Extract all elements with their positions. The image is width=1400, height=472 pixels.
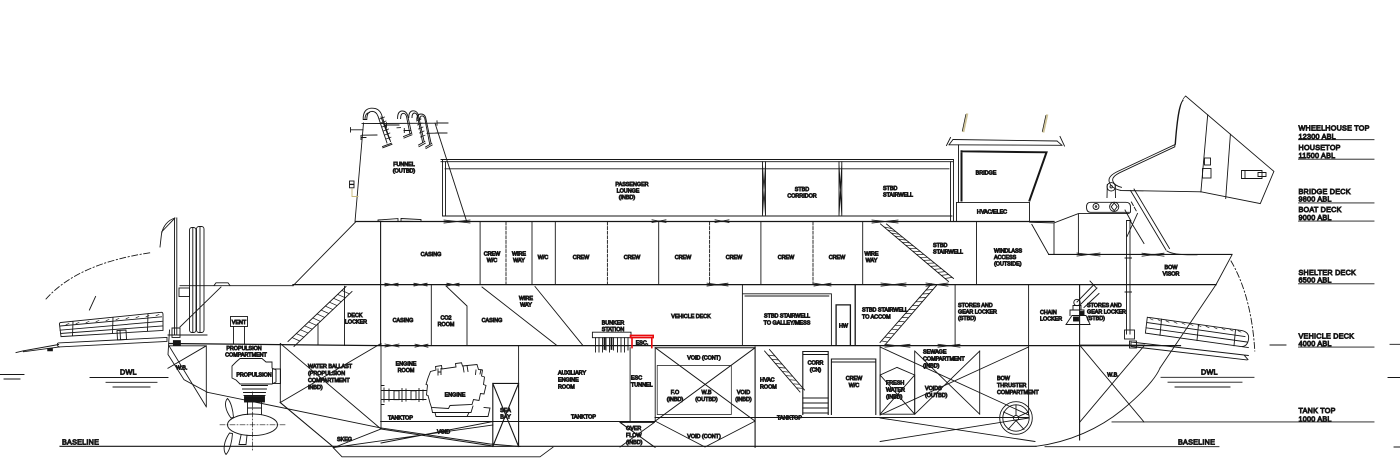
svg-text:VOID (CONT): VOID (CONT) [687, 434, 721, 440]
svg-text:CORR: CORR [808, 361, 824, 367]
svg-text:PROPULSION: PROPULSION [236, 373, 271, 379]
svg-text:STAIRWELL: STAIRWELL [933, 250, 963, 256]
svg-text:VOID: VOID [737, 390, 750, 396]
svg-text:PROPULSION: PROPULSION [226, 346, 261, 352]
svg-text:CASING: CASING [421, 252, 442, 258]
svg-text:STBD: STBD [883, 186, 897, 192]
svg-text:(INBD): (INBD) [923, 364, 940, 370]
svg-text:ROOM: ROOM [760, 385, 777, 391]
svg-text:WINDLASS: WINDLASS [994, 249, 1023, 255]
svg-text:ENGINE: ENGINE [445, 393, 466, 399]
svg-text:VOIDS: VOIDS [925, 386, 942, 392]
svg-text:CREW: CREW [484, 252, 501, 258]
svg-text:(CN): (CN) [810, 368, 822, 374]
svg-text:HVAC/ELEC: HVAC/ELEC [977, 210, 1007, 216]
svg-text:CASING: CASING [393, 318, 414, 324]
svg-text:LOCKER: LOCKER [345, 320, 367, 326]
svg-text:(STBD): (STBD) [958, 316, 976, 322]
svg-text:(PROPULSION: (PROPULSION [308, 371, 345, 377]
svg-text:INBD): INBD) [308, 385, 323, 391]
svg-text:WATER BALLAST: WATER BALLAST [308, 364, 353, 370]
svg-text:ENGINE: ENGINE [558, 378, 579, 384]
svg-text:ENGINE: ENGINE [396, 362, 417, 368]
svg-text:LOUNGE: LOUNGE [617, 189, 640, 195]
svg-text:ESC.: ESC. [636, 341, 649, 347]
svg-text:(INBD): (INBD) [886, 395, 903, 401]
svg-text:TANKTOP: TANKTOP [388, 416, 413, 422]
svg-text:ROOM: ROOM [558, 385, 575, 391]
svg-text:FLOW: FLOW [626, 433, 642, 439]
svg-text:(OUTSIDE): (OUTSIDE) [994, 262, 1022, 268]
svg-text:TUNNEL: TUNNEL [631, 383, 653, 389]
svg-text:CO2: CO2 [440, 316, 451, 322]
svg-text:WAY: WAY [520, 303, 532, 309]
svg-text:11500 ABL: 11500 ABL [1299, 151, 1336, 160]
svg-text:(INBD): (INBD) [735, 397, 752, 403]
svg-text:STATION: STATION [602, 327, 625, 333]
svg-text:(INBD): (INBD) [667, 397, 684, 403]
svg-text:9000 ABL: 9000 ABL [1299, 213, 1332, 222]
svg-text:BASELINE: BASELINE [62, 438, 99, 447]
svg-text:STBD: STBD [933, 243, 947, 249]
svg-text:STBD STAIRWELL: STBD STAIRWELL [862, 308, 908, 314]
svg-text:TO GALLEY/MESS: TO GALLEY/MESS [764, 321, 811, 327]
svg-text:(OUTBD): (OUTBD) [925, 393, 948, 399]
svg-text:TANKTOP: TANKTOP [571, 415, 596, 421]
svg-text:DECK: DECK [348, 313, 363, 319]
svg-text:WIRE: WIRE [519, 296, 533, 302]
svg-text:STAIRWELL: STAIRWELL [883, 193, 913, 199]
svg-text:W.B.: W.B. [176, 366, 187, 372]
svg-text:BRIDGE: BRIDGE [976, 171, 997, 177]
svg-text:GEAR LOCKER: GEAR LOCKER [958, 310, 997, 316]
svg-text:CREW: CREW [846, 376, 863, 382]
svg-text:COMPARTMENT: COMPARTMENT [923, 357, 965, 363]
svg-text:(OUTBD): (OUTBD) [695, 397, 718, 403]
svg-text:W.B.: W.B. [1107, 373, 1118, 379]
svg-text:CREW: CREW [624, 255, 641, 261]
svg-text:THRUSTER: THRUSTER [997, 383, 1026, 389]
svg-text:BOW: BOW [997, 376, 1011, 382]
svg-text:WAY: WAY [513, 258, 525, 264]
svg-text:COMPARTMENT: COMPARTMENT [997, 390, 1039, 396]
svg-text:W/C: W/C [487, 258, 498, 264]
svg-text:STORES AND: STORES AND [1087, 303, 1122, 309]
svg-text:HVAC: HVAC [760, 378, 775, 384]
svg-text:COMPARTMENT: COMPARTMENT [225, 353, 267, 359]
svg-text:ESC: ESC [631, 376, 642, 382]
svg-text:CREW: CREW [778, 255, 795, 261]
svg-text:VOID (CONT): VOID (CONT) [687, 356, 721, 362]
svg-text:SEWAGE: SEWAGE [923, 350, 947, 356]
svg-text:W/C: W/C [849, 383, 860, 389]
svg-text:ROOM: ROOM [438, 322, 455, 328]
svg-text:CORRIDOR: CORRIDOR [787, 194, 816, 200]
svg-text:BAY: BAY [500, 415, 511, 421]
svg-text:BASELINE: BASELINE [1178, 438, 1215, 447]
svg-text:STORES AND: STORES AND [958, 303, 993, 309]
svg-text:AUXILIARY: AUXILIARY [558, 371, 586, 377]
svg-text:VISOR: VISOR [1163, 272, 1180, 278]
svg-text:CREW: CREW [726, 255, 743, 261]
svg-text:(INBD): (INBD) [626, 440, 643, 446]
svg-text:CREW: CREW [675, 255, 692, 261]
svg-text:(OUTBD): (OUTBD) [393, 169, 416, 175]
svg-text:CREW: CREW [573, 255, 590, 261]
svg-text:W/C: W/C [538, 255, 549, 261]
svg-text:ROOM: ROOM [398, 368, 415, 374]
svg-text:(INBD): (INBD) [619, 195, 636, 201]
svg-text:CREW: CREW [829, 255, 846, 261]
svg-text:COMPARTMENT: COMPARTMENT [308, 378, 350, 384]
svg-text:9800 ABL: 9800 ABL [1299, 195, 1332, 204]
svg-text:STBD STAIRWELL: STBD STAIRWELL [764, 314, 810, 320]
svg-text:CHAIN: CHAIN [1040, 310, 1057, 316]
svg-text:STBD: STBD [795, 187, 809, 193]
svg-text:DWL: DWL [1201, 368, 1218, 377]
svg-text:DWL: DWL [120, 368, 137, 377]
svg-text:OVER: OVER [626, 426, 641, 432]
svg-text:ACCESS: ACCESS [994, 255, 1017, 261]
svg-text:GEAR LOCKER: GEAR LOCKER [1087, 310, 1126, 316]
svg-text:BOW: BOW [1165, 265, 1179, 271]
svg-text:PASSENGER: PASSENGER [615, 182, 648, 188]
svg-text:WIRE: WIRE [512, 252, 526, 258]
svg-text:TO ACCOM: TO ACCOM [862, 315, 891, 321]
svg-text:F.O: F.O [671, 390, 679, 396]
svg-text:VEHICLE DECK: VEHICLE DECK [671, 314, 711, 320]
svg-text:FRESH: FRESH [886, 381, 904, 387]
svg-text:SKEG: SKEG [337, 437, 352, 443]
svg-text:BUNKER: BUNKER [602, 321, 625, 327]
svg-text:(STBD): (STBD) [1087, 316, 1105, 322]
svg-text:HW: HW [839, 324, 849, 330]
svg-text:LOCKER: LOCKER [1040, 317, 1062, 323]
svg-text:WAY: WAY [866, 258, 878, 264]
svg-text:W.B: W.B [702, 390, 712, 396]
svg-text:TANKTOP: TANKTOP [777, 416, 802, 422]
svg-text:VENT: VENT [232, 320, 247, 326]
svg-text:SEA: SEA [500, 408, 511, 414]
svg-text:FUNNEL: FUNNEL [393, 162, 415, 168]
svg-text:WATER: WATER [886, 388, 905, 394]
svg-text:WIRE: WIRE [864, 252, 878, 258]
svg-text:CASING: CASING [482, 318, 503, 324]
